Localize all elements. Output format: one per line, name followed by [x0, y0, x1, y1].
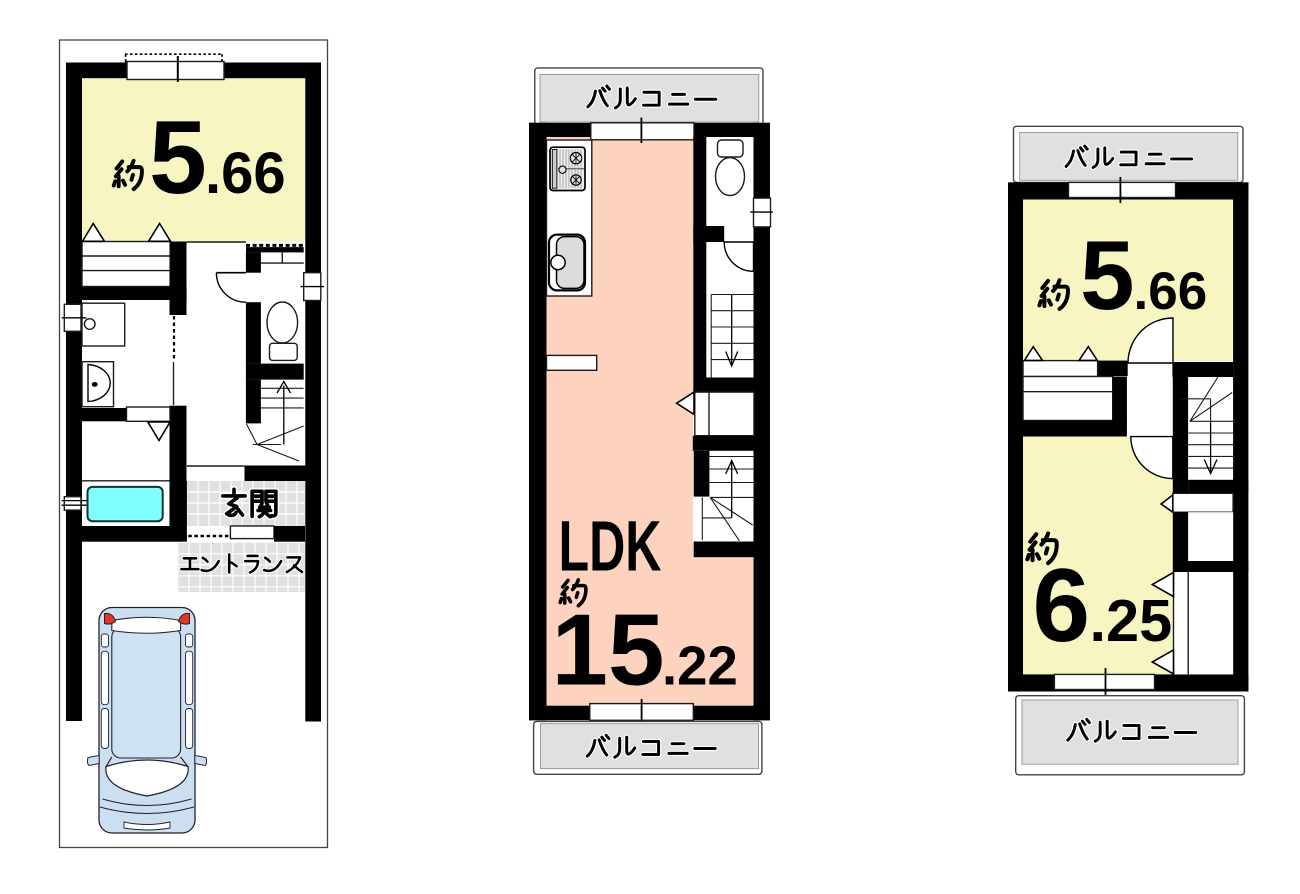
- svg-text:.66: .66: [205, 141, 286, 206]
- svg-text:.66: .66: [1134, 262, 1208, 321]
- svg-text:5: 5: [1080, 220, 1135, 330]
- svg-text:.25: .25: [1090, 587, 1173, 654]
- svg-text:15: 15: [552, 592, 665, 706]
- svg-text:.22: .22: [662, 635, 738, 696]
- svg-text:6: 6: [1033, 547, 1091, 663]
- svg-text:5: 5: [149, 100, 207, 216]
- svg-text:LDK: LDK: [559, 508, 662, 587]
